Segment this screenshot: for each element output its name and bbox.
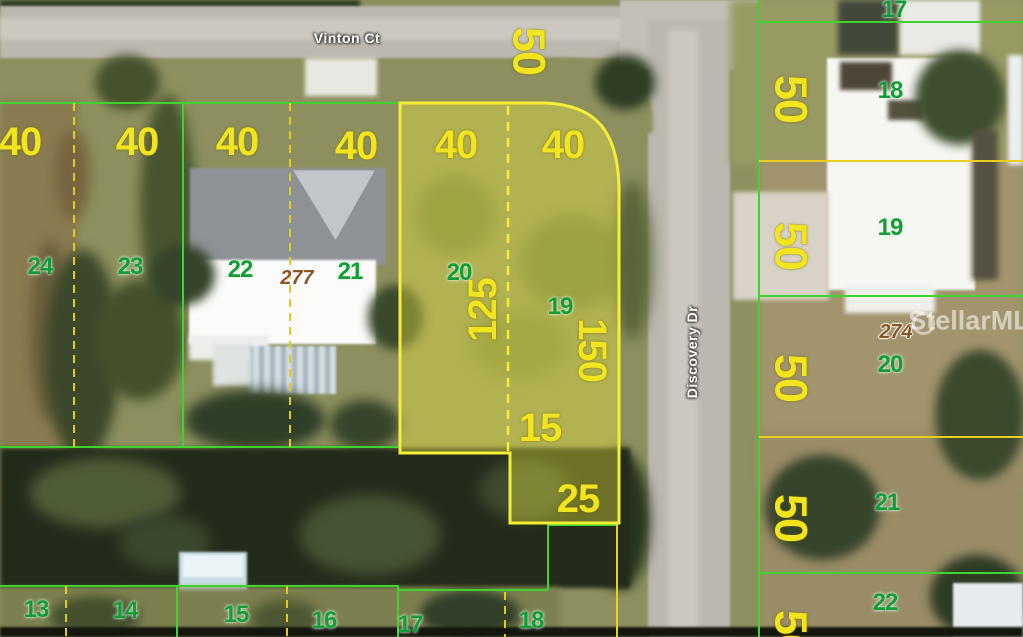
dimension-label: 40	[116, 122, 159, 162]
dimension-label: 50	[507, 27, 552, 75]
lot-number: 18	[519, 609, 544, 633]
lot-number: 21	[338, 260, 363, 284]
lot-number: 16	[312, 609, 337, 633]
dimension-label: 40	[0, 122, 41, 162]
lot-number: 24	[28, 255, 53, 279]
dimension-label: 50	[769, 354, 814, 402]
lot-number: 22	[873, 591, 898, 615]
lot-number: 14	[113, 599, 138, 623]
street-name: Discovery Dr	[685, 306, 699, 398]
dimension-label: 50	[769, 610, 814, 637]
lot-number: 23	[118, 255, 143, 279]
dimension-label: 40	[542, 125, 585, 165]
dimension-label: 150	[572, 318, 612, 382]
dimension-label: 15	[519, 408, 562, 448]
lot-number: 20	[878, 353, 903, 377]
lot-number: 17	[398, 613, 423, 637]
lot-number: 17	[882, 0, 907, 22]
dimension-label: 50	[769, 222, 814, 270]
dimension-label: 125	[463, 278, 503, 342]
address-number: 277	[280, 268, 313, 288]
street-name: Vinton Ct	[314, 31, 380, 45]
lot-number: 21	[875, 491, 900, 515]
dimension-label: 40	[335, 126, 378, 166]
lot-number: 20	[447, 261, 472, 285]
lot-number: 18	[878, 79, 903, 103]
dimension-label: 25	[557, 479, 600, 519]
lot-number: 19	[878, 216, 903, 240]
dimension-label: 40	[435, 125, 478, 165]
lot-number: 13	[24, 598, 49, 622]
lot-number: 22	[228, 258, 253, 282]
dimension-label: 40	[216, 122, 259, 162]
map-labels: Vinton CtDiscovery Dr4040404040401525125…	[0, 0, 1023, 637]
dimension-label: 50	[769, 75, 814, 123]
lot-number: 19	[548, 295, 573, 319]
aerial-parcel-map: Vinton CtDiscovery Dr4040404040401525125…	[0, 0, 1023, 637]
dimension-label: 50	[769, 494, 814, 542]
lot-number: 15	[224, 603, 249, 627]
stellar-logo-icon	[912, 312, 935, 335]
